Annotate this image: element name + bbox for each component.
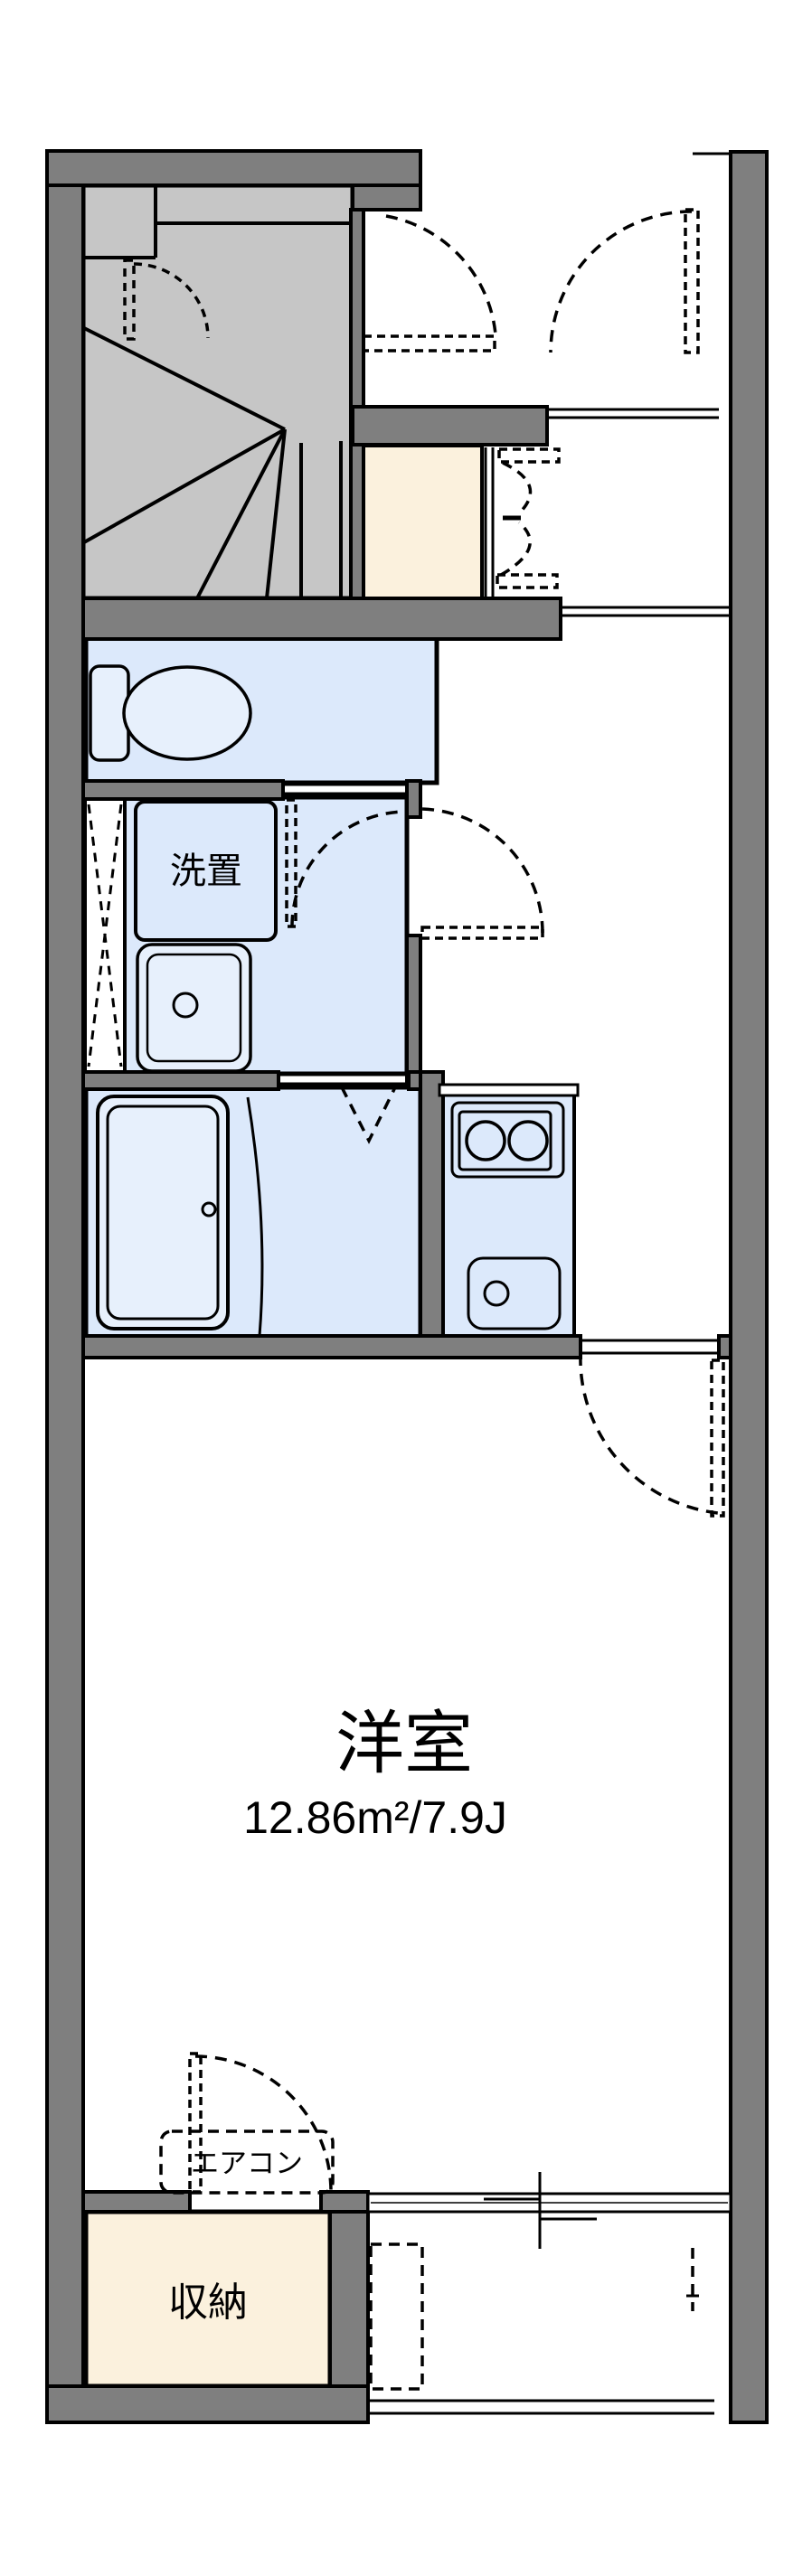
washroom-fixtures bbox=[85, 799, 276, 1072]
wall-wash-right bbox=[407, 935, 420, 1085]
door-leaf-entry bbox=[685, 210, 698, 353]
wall-stair-right bbox=[351, 210, 364, 598]
door-leaf-main-room bbox=[712, 1360, 723, 1516]
wall-top-step bbox=[353, 185, 420, 210]
washbasin bbox=[137, 945, 250, 1071]
wall-bottom bbox=[47, 2386, 368, 2422]
toilet-fixture bbox=[90, 666, 250, 760]
door-arc-hall-left bbox=[386, 216, 496, 334]
wall-room-top bbox=[83, 1336, 581, 1358]
storage-label: 収納 bbox=[168, 2280, 248, 2325]
wall-stub-1 bbox=[407, 781, 420, 817]
aircon-label: エアコン bbox=[191, 2148, 303, 2179]
kitchen-counter-area bbox=[443, 1086, 574, 1340]
wall-left bbox=[47, 151, 83, 2422]
floor-plan: 洋室 12.86m²/7.9J 洗置 収納 エアコン bbox=[0, 0, 812, 2576]
main-room-label: 洋室 bbox=[335, 1706, 473, 1782]
washer-place-label: 洗置 bbox=[170, 851, 242, 891]
wall-closet-top-left bbox=[83, 2192, 190, 2212]
wall-under-stairs bbox=[83, 598, 561, 639]
shoe-cabinet-door-bottom bbox=[497, 575, 557, 588]
wall-right bbox=[731, 152, 767, 2422]
wall-hall-floor bbox=[353, 407, 547, 445]
door-arc-main-room bbox=[581, 1354, 718, 1513]
door-leaf-corridor bbox=[422, 927, 543, 938]
wall-wash-bath bbox=[83, 1072, 279, 1089]
wall-stub-3 bbox=[719, 1336, 731, 1358]
main-room-area: 12.86m²/7.9J bbox=[243, 1792, 507, 1843]
window-and-balcony bbox=[368, 2172, 731, 2413]
door-leaf-hall-left bbox=[364, 336, 495, 351]
door-arc-corridor bbox=[419, 809, 543, 933]
wall-toilet-wash bbox=[83, 781, 283, 799]
door-arc-entry bbox=[551, 212, 692, 353]
wall-closet-top-right bbox=[321, 2192, 368, 2212]
wall-bath-kitchen bbox=[420, 1072, 443, 1358]
staircase-area bbox=[83, 185, 353, 598]
shoe-cabinet-door-top bbox=[499, 449, 559, 462]
outdoor-unit bbox=[371, 2244, 422, 2389]
entrance-genkan bbox=[362, 446, 482, 598]
floor-plan-svg: 洋室 12.86m²/7.9J 洗置 収納 エアコン bbox=[0, 0, 812, 2576]
wall-top bbox=[47, 151, 420, 185]
